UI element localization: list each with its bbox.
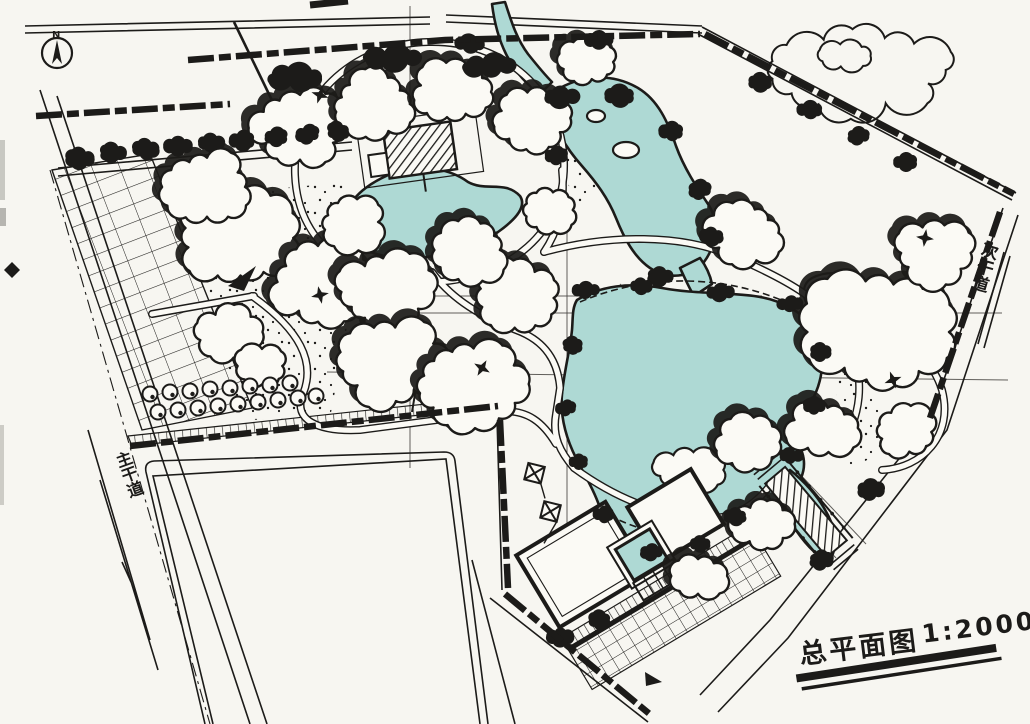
- north-label: N: [52, 30, 60, 41]
- diamond-planter: [534, 495, 567, 528]
- pond-islet: [587, 110, 605, 122]
- north-arrow-icon: N: [42, 30, 72, 68]
- diamond-planter: [518, 457, 551, 490]
- drawing-scale: 1:2000: [920, 606, 1030, 649]
- hand-drawn-landscape-master-plan: N 次干道 主干道 总平面图 1:2000: [0, 0, 1030, 724]
- pond-islet: [613, 142, 639, 158]
- title-block: 总平面图 1:2000: [791, 606, 1030, 689]
- road-arrow-marker: [645, 672, 662, 686]
- cloud-sketch: [768, 24, 954, 123]
- adjacent-parcel: [146, 452, 488, 724]
- inlet-stream: [492, 2, 552, 94]
- road-label-west: 主干道: [111, 448, 146, 501]
- site-plan-drawing: N 次干道 主干道 总平面图 1:2000: [0, 0, 1030, 724]
